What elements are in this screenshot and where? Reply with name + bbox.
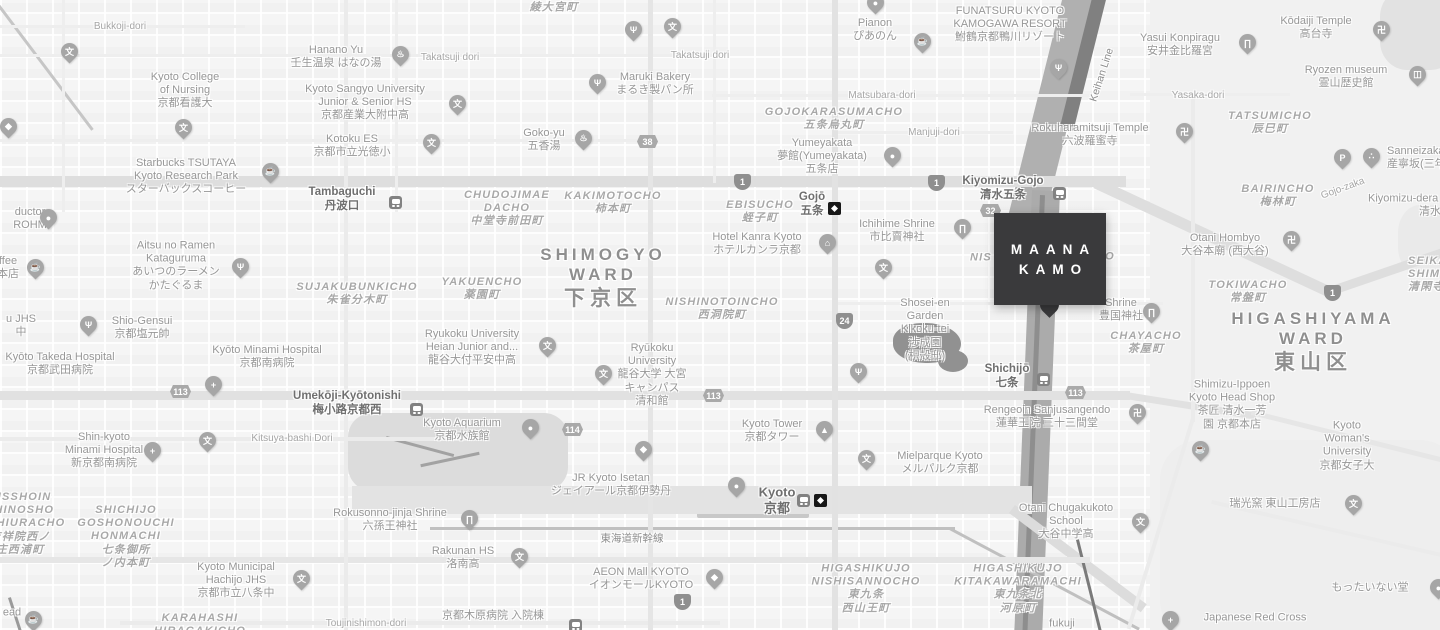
map-canvas[interactable]: Bukkoji-doriKyoto Collegeof Nursing京都看護大… [0, 0, 1440, 630]
map-label: Kiyomizu-dera [1368, 192, 1438, 205]
route-shield-38: 38 [637, 135, 658, 148]
map-label: TOKIWACHO常盤町 [1208, 279, 1287, 305]
map-label: Japanese Red Cross [1204, 611, 1307, 624]
generic-icon: ● [728, 477, 745, 494]
shopping-icon: ◆ [706, 569, 723, 586]
map-label: EBISUCHO蛭子町 [726, 199, 794, 225]
shrine-pin[interactable]: ∏ [950, 215, 974, 239]
map-label: Rengeoin Sanjusangendo蓮華王院 三十三間堂 [984, 404, 1111, 430]
cafe-pin[interactable]: ☕ [21, 607, 45, 630]
restaurant-icon: Ψ [625, 21, 642, 38]
map-label: Rokusonno-jinja Shrine六孫王神社 [333, 507, 447, 533]
map-label: ffee本店 [0, 255, 19, 281]
map-label: Goko-yu五香湯 [523, 127, 565, 153]
map-label: AEON Mall KYOTOイオンモールKYOTO [589, 566, 693, 592]
map-label: YAKUENCHO薬園町 [442, 276, 523, 302]
map-label: Kiyomizu-Gojo清水五条 [962, 175, 1043, 203]
map-label: SUJAKUBUNKICHO朱雀分木町 [296, 281, 417, 307]
map-label: TATSUMICHO辰巳町 [1228, 110, 1312, 136]
cafe-pin[interactable]: ☕ [1188, 437, 1212, 461]
map-label: Shichijō七条 [985, 363, 1030, 391]
map-label: Kyōto Takeda Hospital京都武田病院 [5, 351, 114, 377]
hospital-icon: + [205, 376, 222, 393]
generic-icon: ● [522, 419, 539, 436]
map-label: NIS [970, 251, 992, 264]
map-label: HIGASHIYAMAWARD東山区 [1231, 309, 1394, 375]
map-label: KISSHOINSHINOSHONISHIURACHO吉祥院西ノ庄西浦町 [0, 491, 65, 557]
school-icon: 文 [423, 134, 440, 151]
restaurant-icon: Ψ [1050, 59, 1067, 76]
shrine-pin[interactable]: ∏ [457, 506, 481, 530]
map-label: GOJOKARASUMACHO五条烏丸町 [765, 106, 903, 132]
map-label: Kyoto Sangyo UniversityJunior & Senior H… [305, 83, 425, 123]
school-pin[interactable]: 文 [289, 566, 313, 590]
tower-icon: ▲ [816, 421, 833, 438]
school-pin[interactable]: 文 [195, 428, 219, 452]
restaurant-pin[interactable]: Ψ [621, 17, 645, 41]
map-label: Otani ChugakukotoSchool大谷中学高 [1019, 502, 1113, 542]
restaurant-icon: Ψ [589, 74, 606, 91]
generic-pin[interactable]: ● [880, 143, 904, 167]
generic-icon: ● [40, 209, 57, 226]
temple-icon: 卍 [1283, 231, 1300, 248]
school-icon: 文 [539, 337, 556, 354]
map-label: Ryozen museum霊山歴史館 [1305, 64, 1388, 90]
map-label: 東海道新幹線 [601, 533, 664, 546]
road-shichijo-dori [0, 391, 1130, 400]
map-label: Rakunan HS洛南高 [432, 545, 494, 571]
cafe-icon: ☕ [27, 259, 44, 276]
cafe-pin[interactable]: ☕ [258, 159, 282, 183]
generic-pin[interactable]: ● [1426, 575, 1440, 599]
generic-pin[interactable]: ● [724, 473, 748, 497]
museum-icon: ◫ [1409, 66, 1426, 83]
spa-icon: ♨ [575, 130, 592, 147]
school-icon: 文 [61, 43, 78, 60]
hospital-pin[interactable]: + [140, 438, 164, 462]
temple-pin[interactable]: 卍 [1125, 400, 1149, 424]
map-label: HIGASHIKUJONISHISANNOCHO東九条西山王町 [811, 563, 920, 616]
museum-pin[interactable]: ◫ [1405, 62, 1429, 86]
cafe-icon: ☕ [262, 163, 279, 180]
map-label: Kitsuya-bashi Dori [251, 433, 332, 445]
map-label: Bukkoji-dori [94, 21, 146, 33]
school-pin[interactable]: 文 [419, 130, 443, 154]
map-label: RyūkokuUniversity龍谷大学 大宮キャンパス清和館 [617, 342, 686, 408]
map-label: Ichihime Shrine市比賣神社 [859, 218, 935, 244]
cafe-pin[interactable]: ☕ [23, 255, 47, 279]
map-label: Kotoku ES京都市立光徳小 [314, 133, 391, 159]
temple-pin[interactable]: 卍 [1369, 17, 1393, 41]
jr-station-icon[interactable] [797, 494, 810, 507]
temple-pin[interactable]: 卍 [1279, 227, 1303, 251]
school-pin[interactable]: 文 [854, 446, 878, 470]
generic-icon: ● [867, 0, 884, 11]
map-label: Matsubara-dori [848, 90, 915, 102]
map-label: Maruki Bakeryまるき製パン所 [616, 71, 694, 97]
spa-pin[interactable]: ♨ [571, 126, 595, 150]
map-label: 綾大宮町 [530, 1, 579, 14]
shopping-pin[interactable]: ◆ [631, 437, 655, 461]
map-label: Gojō五条 [799, 191, 825, 219]
school-icon: 文 [875, 259, 892, 276]
map-label: Kyoto MunicipalHachijo JHS京都市立八条中 [197, 561, 275, 601]
hospital-icon: + [1162, 611, 1179, 628]
map-label: SHIMOGYOWARD下京区 [540, 245, 666, 311]
restaurant-pin[interactable]: Ψ [585, 70, 609, 94]
school-icon: 文 [664, 18, 681, 35]
restaurant-pin[interactable]: Ψ [76, 312, 100, 336]
restaurant-icon: Ψ [232, 258, 249, 275]
route-shield-113: 113 [170, 385, 191, 398]
map-label: Aitsu no RamenKatagurumaあいつのラーメンかたぐるま [132, 240, 220, 293]
hospital-pin[interactable]: + [1158, 607, 1182, 630]
map-label: Pianonぴあのん [853, 17, 897, 43]
school-icon: 文 [595, 365, 612, 382]
map-label: Toujinishimon-dori [326, 618, 407, 630]
jr-station-icon[interactable] [410, 403, 423, 416]
map-label: KyotoWoman'sUniversity京都女子大 [1320, 420, 1375, 473]
jr-station-icon[interactable] [1037, 373, 1050, 386]
map-label: Starbucks TSUTAYAKyoto Research Parkスターバ… [126, 157, 247, 197]
map-label: Shimizu-IppoenKyoto Head Shop茶匠 清水一芳園 京都… [1189, 379, 1275, 432]
map-label: JR Kyoto Isetanジェイアール京都伊勢丹 [551, 472, 671, 498]
hotel-icon: ⌂ [819, 234, 836, 251]
restaurant-icon: Ψ [80, 316, 97, 333]
restaurant-icon: Ψ [850, 363, 867, 380]
dots-pin[interactable]: ∴ [1359, 144, 1383, 168]
map-label: ead [3, 606, 21, 619]
school-icon: 文 [858, 450, 875, 467]
map-label: Kyoto京都 [759, 484, 796, 515]
map-label: Umekōji-Kyōtonishi梅小路京都西 [293, 390, 401, 418]
school-icon: 文 [175, 119, 192, 136]
shrine-pin[interactable]: ∏ [1139, 299, 1163, 323]
shrine-icon: ∏ [1143, 303, 1160, 320]
road [62, 0, 65, 212]
map-label: Hotel Kanra Kyotoホテルカンラ京都 [712, 231, 801, 257]
shrine-pin[interactable]: ∏ [1235, 30, 1259, 54]
map-label: SHICHIJOGOSHONOUCHIHONMACHI七条御所ノ内本町 [77, 504, 175, 570]
school-icon: 文 [449, 95, 466, 112]
school-icon: 文 [199, 432, 216, 449]
school-pin[interactable]: 文 [1128, 509, 1152, 533]
jr-station-band [352, 486, 1032, 514]
school-icon: 文 [1132, 513, 1149, 530]
spa-icon: ♨ [392, 46, 409, 63]
generic-pin[interactable]: ● [518, 415, 542, 439]
cafe-icon: ☕ [25, 611, 42, 628]
shrine-icon: ∏ [1239, 34, 1256, 51]
maana-kamo-marker[interactable]: MAANA KAMO [994, 213, 1106, 305]
school-pin[interactable]: 文 [57, 39, 81, 63]
parking-icon: P [1334, 149, 1351, 166]
tower-pin[interactable]: ▲ [812, 417, 836, 441]
map-label: HIGASHIKUJOKITAKAWARAMACHI東九条北河原町 [954, 563, 1082, 616]
shrine-icon: ∏ [461, 510, 478, 527]
map-label: 京都木原病院 入院棟 [442, 609, 544, 622]
map-label: Rokuharamitsuji Temple六波羅蜜寺 [1031, 122, 1148, 148]
map-label: KAKIMOTOCHO柿本町 [564, 190, 661, 216]
map-label: u JHS中 [6, 313, 36, 339]
cafe-icon: ☕ [1192, 441, 1209, 458]
route-shield-113: 113 [1065, 386, 1086, 399]
school-pin[interactable]: 文 [660, 14, 684, 38]
map-label: CHUDOJIMAEDACHO中堂寺前田町 [464, 189, 550, 229]
map-label: Yasui Konpiragu安井金比羅宮 [1140, 32, 1220, 58]
school-pin[interactable]: 文 [535, 333, 559, 357]
map-label: Yasaka-dori [1172, 90, 1225, 102]
marker-title-line1: MAANA [1004, 242, 1096, 257]
school-pin[interactable]: 文 [171, 115, 195, 139]
jr-station-icon[interactable] [569, 619, 582, 630]
map-label: 瑞光窯 東山工房店 [1229, 497, 1320, 510]
cafe-pin[interactable]: ☕ [910, 29, 934, 53]
generic-icon: ● [1430, 579, 1440, 596]
temple-icon: 卍 [1176, 123, 1193, 140]
shrine-icon: ∏ [954, 219, 971, 236]
map-label: O [1105, 250, 1115, 263]
map-label: Otani Hombyo大谷本廟 (西大谷) [1181, 232, 1268, 258]
restaurant-pin[interactable]: Ψ [846, 359, 870, 383]
map-label: Shosei-enGardenKikoku-tei渉成園(枳殻邸) [900, 297, 950, 363]
subway-station-icon[interactable] [828, 202, 841, 215]
school-pin[interactable]: 文 [871, 255, 895, 279]
map-label: Hanano Yu壬生温泉 はなの湯 [290, 44, 381, 70]
map-label: BAIRINCHO梅林町 [1241, 183, 1314, 209]
map-label: Takatsuji dori [671, 50, 729, 62]
route-shield-113: 113 [703, 389, 724, 402]
shopping-pin[interactable]: ◆ [702, 565, 726, 589]
temple-icon: 卍 [1129, 404, 1146, 421]
map-label: KARAHASHIHIRAGAKICHO [154, 612, 246, 630]
school-icon: 文 [1345, 495, 1362, 512]
map-label: CHAYACHO茶屋町 [1110, 330, 1182, 356]
generic-pin[interactable]: ● [36, 205, 60, 229]
shopping-icon: ◆ [635, 441, 652, 458]
school-pin[interactable]: 文 [1341, 491, 1365, 515]
parking-pin[interactable]: P [1330, 145, 1354, 169]
hospital-pin[interactable]: + [201, 372, 225, 396]
school-pin[interactable]: 文 [591, 361, 615, 385]
map-label: Tambaguchi丹波口 [309, 186, 376, 214]
shopping-pin[interactable]: ◆ [0, 114, 21, 138]
marker-title-line2: KAMO [1012, 262, 1088, 277]
shinkansen-line [430, 527, 955, 530]
route-shield-114: 114 [562, 423, 583, 436]
map-label: Kyoto Tower京都タワー [742, 418, 802, 444]
subway-station-icon[interactable] [814, 494, 827, 507]
cafe-icon: ☕ [914, 33, 931, 50]
map-label: Kōdaiji Temple高台寺 [1280, 15, 1351, 41]
map-label: Manjuji-dori [908, 127, 960, 139]
generic-pin[interactable]: ● [863, 0, 887, 15]
spa-pin[interactable]: ♨ [388, 42, 412, 66]
map-label: Shio-Gensui京都塩元帥 [112, 315, 173, 341]
hospital-icon: + [144, 442, 161, 459]
map-label: Kyoto Aquarium京都水族館 [423, 417, 501, 443]
map-label: Sanneizaka産寧坂(三年坂) [1387, 145, 1440, 171]
school-pin[interactable]: 文 [445, 91, 469, 115]
temple-pin[interactable]: 卍 [1172, 119, 1196, 143]
map-label: Takatsuji dori [421, 52, 479, 64]
restaurant-pin[interactable]: Ψ [228, 254, 252, 278]
hotel-pin[interactable]: ⌂ [815, 230, 839, 254]
map-label: Mielparque Kyotoメルパルク京都 [897, 450, 983, 476]
map-label: もったいない堂 [1332, 581, 1409, 594]
map-label: Ryukoku UniversityHeian Junior and...龍谷大… [425, 328, 519, 368]
school-icon: 文 [511, 548, 528, 565]
map-label: Kyōto Minami Hospital京都南病院 [212, 344, 321, 370]
road [713, 0, 716, 183]
map-label: 清水寺 [1419, 205, 1440, 218]
generic-icon: ● [884, 147, 901, 164]
school-pin[interactable]: 文 [507, 544, 531, 568]
map-label: SEIKANJISHIMOYAMACHO清閑寺下山町 [1408, 255, 1440, 295]
map-label: Kyoto Collegeof Nursing京都看護大 [151, 71, 220, 111]
jr-station-icon[interactable] [1053, 187, 1066, 200]
school-icon: 文 [293, 570, 310, 587]
jr-station-icon[interactable] [389, 196, 402, 209]
map-label: fukuji [1049, 617, 1075, 630]
temple-icon: 卍 [1373, 21, 1390, 38]
map-label: Shin-kyotoMinami Hospital新京都南病院 [65, 431, 143, 471]
map-label: Yumeyakata夢館(Yumeyakata)五条店 [777, 137, 867, 177]
restaurant-pin[interactable]: Ψ [1046, 55, 1070, 79]
map-label: FUNATSURU KYOTOKAMOGAWA RESORT鮒鶴京都鴨川リゾート [953, 5, 1066, 45]
dots-icon: ∴ [1363, 148, 1380, 165]
shopping-icon: ◆ [0, 118, 17, 135]
map-label: NISHINOTOINCHO西洞院町 [665, 296, 778, 322]
